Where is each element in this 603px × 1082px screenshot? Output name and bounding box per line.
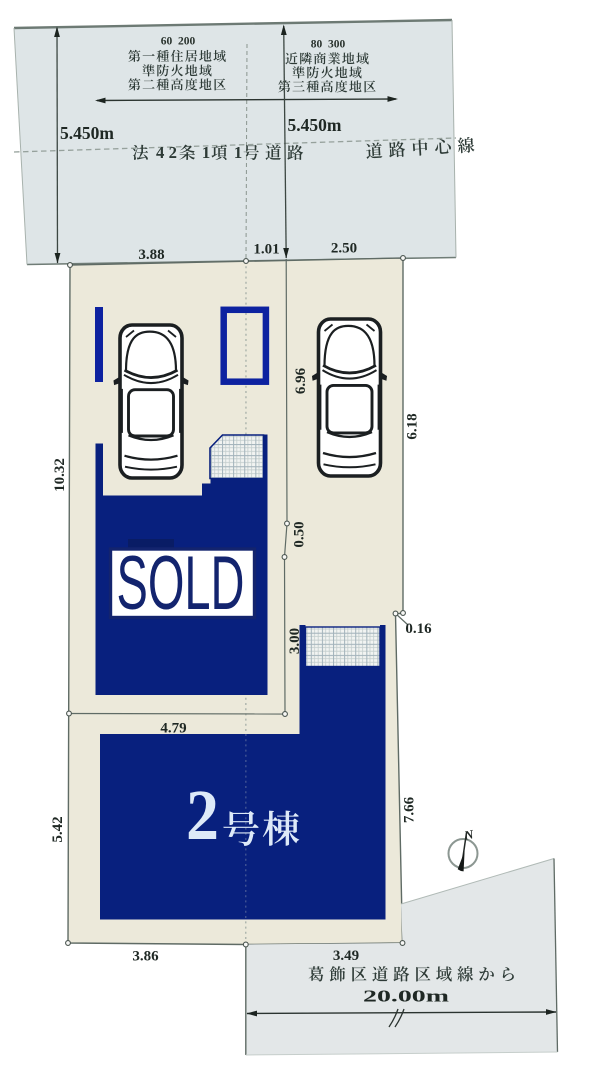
svg-text:5.450m: 5.450m <box>60 123 114 143</box>
svg-text:1: 1 <box>202 143 210 162</box>
svg-text:4: 4 <box>156 143 165 162</box>
svg-text:0.50: 0.50 <box>292 521 308 547</box>
svg-text:2: 2 <box>169 143 177 162</box>
svg-text:3.88: 3.88 <box>138 247 164 263</box>
svg-text:2: 2 <box>186 775 219 855</box>
svg-text:3.00: 3.00 <box>287 628 303 654</box>
svg-text:6.18: 6.18 <box>405 413 421 439</box>
svg-text:6.96: 6.96 <box>293 367 309 394</box>
svg-text:5.42: 5.42 <box>50 816 66 842</box>
svg-text:3.86: 3.86 <box>132 949 159 965</box>
svg-text:60 200: 60 200 <box>161 35 196 47</box>
svg-text:2.50: 2.50 <box>331 241 357 257</box>
svg-text:80 300: 80 300 <box>311 38 346 50</box>
svg-text:3.49: 3.49 <box>333 948 359 964</box>
svg-text:7.66: 7.66 <box>402 796 418 823</box>
svg-text:1: 1 <box>234 143 242 162</box>
svg-text:10.32: 10.32 <box>52 458 68 492</box>
svg-text:0.16: 0.16 <box>405 621 432 637</box>
svg-text:4.79: 4.79 <box>160 721 186 737</box>
svg-text:SOLD: SOLD <box>117 541 245 626</box>
svg-text:20.00m: 20.00m <box>363 987 449 1006</box>
svg-text:5.450m: 5.450m <box>288 115 342 135</box>
svg-text:1.01: 1.01 <box>253 242 279 258</box>
